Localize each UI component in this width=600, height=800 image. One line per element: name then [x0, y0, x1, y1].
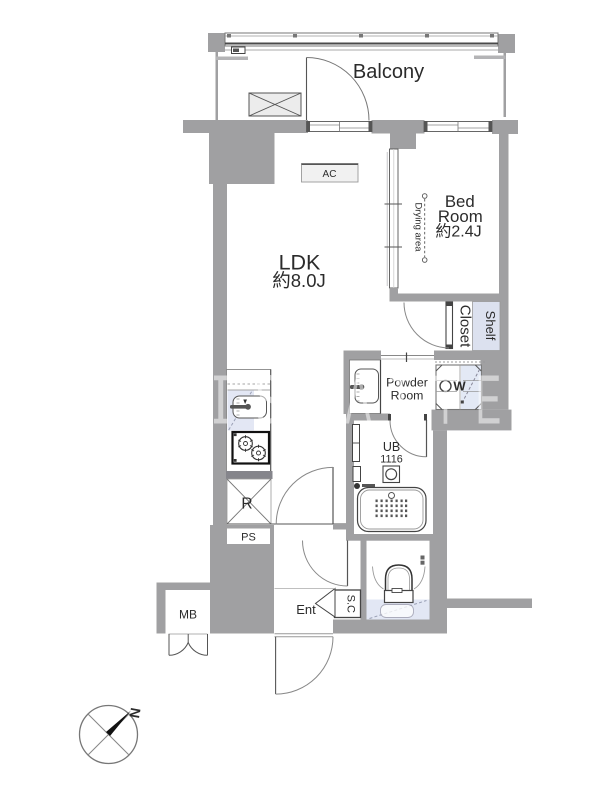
- svg-text:1116: 1116: [380, 454, 402, 466]
- svg-text:R: R: [241, 496, 252, 513]
- svg-text:PS: PS: [241, 532, 256, 544]
- svg-text:Shelf: Shelf: [483, 311, 498, 341]
- svg-text:T: T: [297, 362, 321, 440]
- svg-text:Ent: Ent: [296, 602, 316, 617]
- svg-text:Balcony: Balcony: [353, 61, 424, 83]
- svg-text:約8.0J: 約8.0J: [272, 270, 325, 291]
- svg-text:T: T: [389, 362, 413, 440]
- svg-text:MB: MB: [179, 608, 197, 622]
- svg-text:Closet: Closet: [457, 305, 474, 348]
- svg-text:T: T: [434, 362, 458, 440]
- svg-text:AC: AC: [323, 169, 337, 180]
- svg-text:Drying area: Drying area: [413, 202, 424, 252]
- svg-text:E: E: [476, 360, 502, 438]
- svg-text:S: S: [255, 360, 280, 439]
- svg-text:A: A: [345, 361, 372, 440]
- svg-text:N: N: [126, 707, 144, 720]
- svg-text:約2.4J: 約2.4J: [435, 223, 481, 241]
- svg-text:UB: UB: [383, 440, 400, 454]
- svg-text:S.C: S.C: [345, 595, 357, 613]
